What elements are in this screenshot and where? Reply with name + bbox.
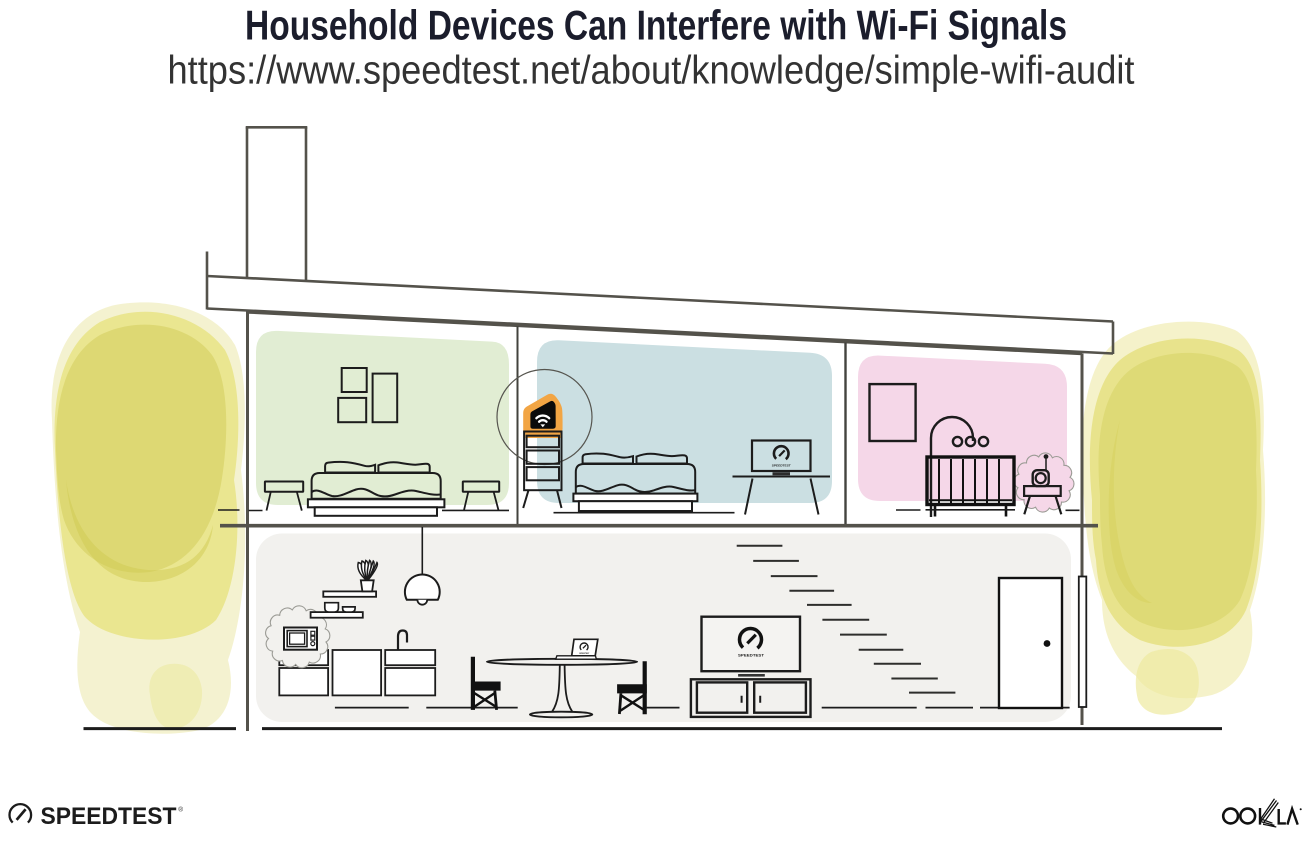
svg-text:https://www.speedtest.net/abou: https://www.speedtest.net/about/knowledg… (168, 49, 1135, 93)
svg-text:Household Devices Can Interfer: Household Devices Can Interfere with Wi-… (245, 2, 1067, 49)
svg-text:SPEEDTEST: SPEEDTEST (41, 803, 177, 830)
svg-text:®: ® (178, 806, 183, 814)
svg-text:SPEEDTEST: SPEEDTEST (772, 463, 791, 467)
svg-text:SPEEDTEST: SPEEDTEST (579, 653, 590, 655)
svg-text:SPEEDTEST: SPEEDTEST (738, 654, 765, 658)
